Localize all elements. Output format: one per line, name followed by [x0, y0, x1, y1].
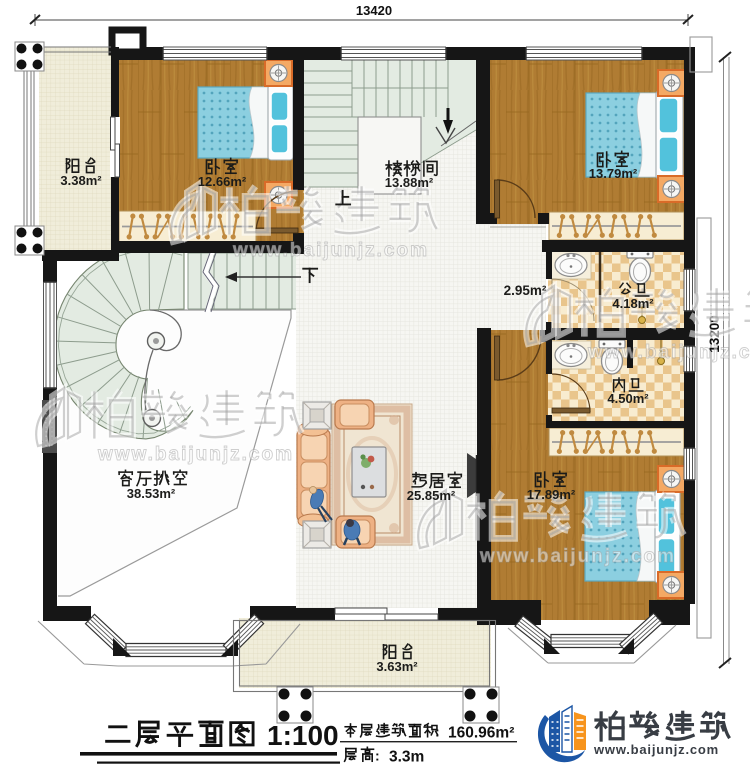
svg-text:25.85m²: 25.85m² — [407, 488, 456, 503]
svg-text:www.baijunjz.com: www.baijunjz.com — [587, 342, 750, 363]
svg-text:3.38m²: 3.38m² — [60, 173, 102, 188]
svg-text:12.66m²: 12.66m² — [198, 174, 247, 189]
svg-text:3.3m: 3.3m — [389, 749, 424, 766]
svg-text:3.63m²: 3.63m² — [376, 659, 418, 674]
svg-text:4.50m²: 4.50m² — [607, 391, 649, 406]
svg-text:4.18m²: 4.18m² — [612, 296, 654, 311]
svg-text:38.53m²: 38.53m² — [127, 486, 176, 501]
svg-text:www.baijunjz.com: www.baijunjz.com — [97, 444, 294, 465]
svg-text:17.89m²: 17.89m² — [527, 487, 576, 502]
svg-text:13.88m²: 13.88m² — [385, 175, 434, 190]
svg-text:1:100: 1:100 — [267, 720, 339, 751]
svg-text:2.95m²: 2.95m² — [504, 283, 547, 298]
svg-text:www.baijunjz.com: www.baijunjz.com — [479, 546, 676, 567]
svg-text::: : — [435, 724, 440, 740]
svg-text:www.baijunjz.com: www.baijunjz.com — [232, 240, 429, 261]
svg-text:www.baijunjz.com: www.baijunjz.com — [593, 742, 719, 757]
svg-text:13.79m²: 13.79m² — [589, 166, 638, 181]
svg-text:13420: 13420 — [356, 3, 392, 18]
svg-text::: : — [375, 748, 380, 764]
svg-text:160.96m²: 160.96m² — [448, 725, 514, 742]
